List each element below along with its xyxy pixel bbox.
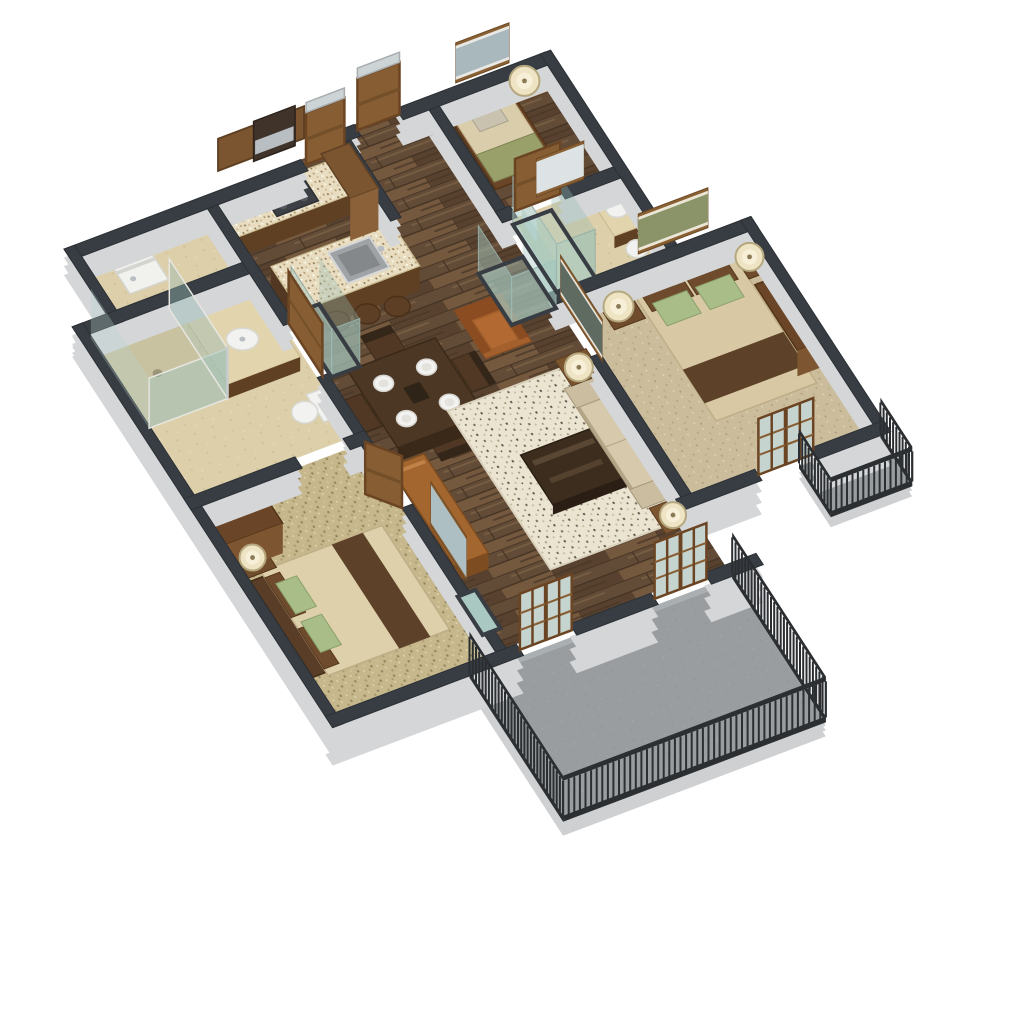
floorplan-svg xyxy=(0,0,1024,1024)
floorplan-3d-render: 3D isometric apartment floor plan render xyxy=(0,0,1024,1024)
